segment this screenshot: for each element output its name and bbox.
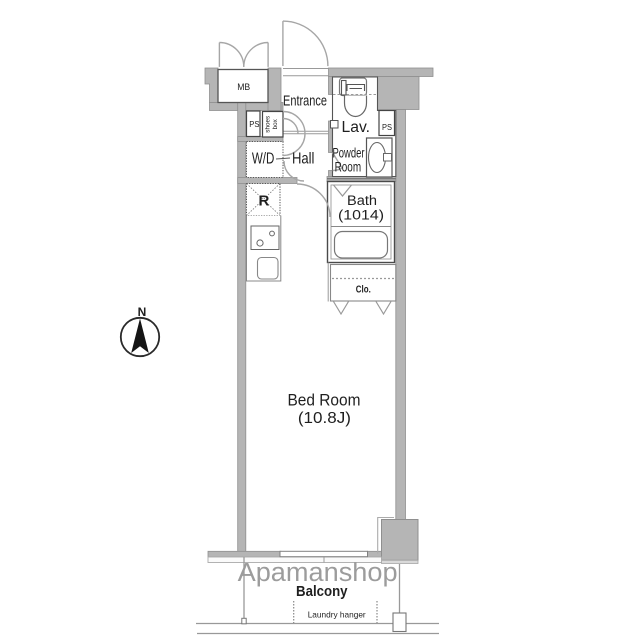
svg-text:Bed Room: Bed Room bbox=[288, 392, 361, 410]
svg-text:N: N bbox=[138, 305, 147, 319]
svg-text:box: box bbox=[272, 118, 279, 129]
svg-text:MB: MB bbox=[237, 82, 250, 93]
svg-text:Laundry hanger: Laundry hanger bbox=[308, 610, 366, 620]
svg-text:PS: PS bbox=[382, 123, 392, 132]
svg-text:W/D: W/D bbox=[252, 151, 275, 168]
svg-text:(10.8J): (10.8J) bbox=[298, 410, 351, 427]
svg-text:Entrance: Entrance bbox=[283, 94, 327, 110]
svg-text:(1014): (1014) bbox=[338, 206, 384, 222]
svg-text:Lav.: Lav. bbox=[342, 119, 371, 136]
svg-text:Clo.: Clo. bbox=[356, 284, 371, 295]
svg-text:Hall: Hall bbox=[292, 151, 315, 168]
svg-text:PS: PS bbox=[249, 120, 259, 129]
svg-text:Balcony: Balcony bbox=[296, 583, 348, 600]
svg-text:shoes: shoes bbox=[264, 116, 271, 133]
svg-text:R: R bbox=[258, 193, 269, 210]
svg-text:Room: Room bbox=[335, 159, 362, 175]
